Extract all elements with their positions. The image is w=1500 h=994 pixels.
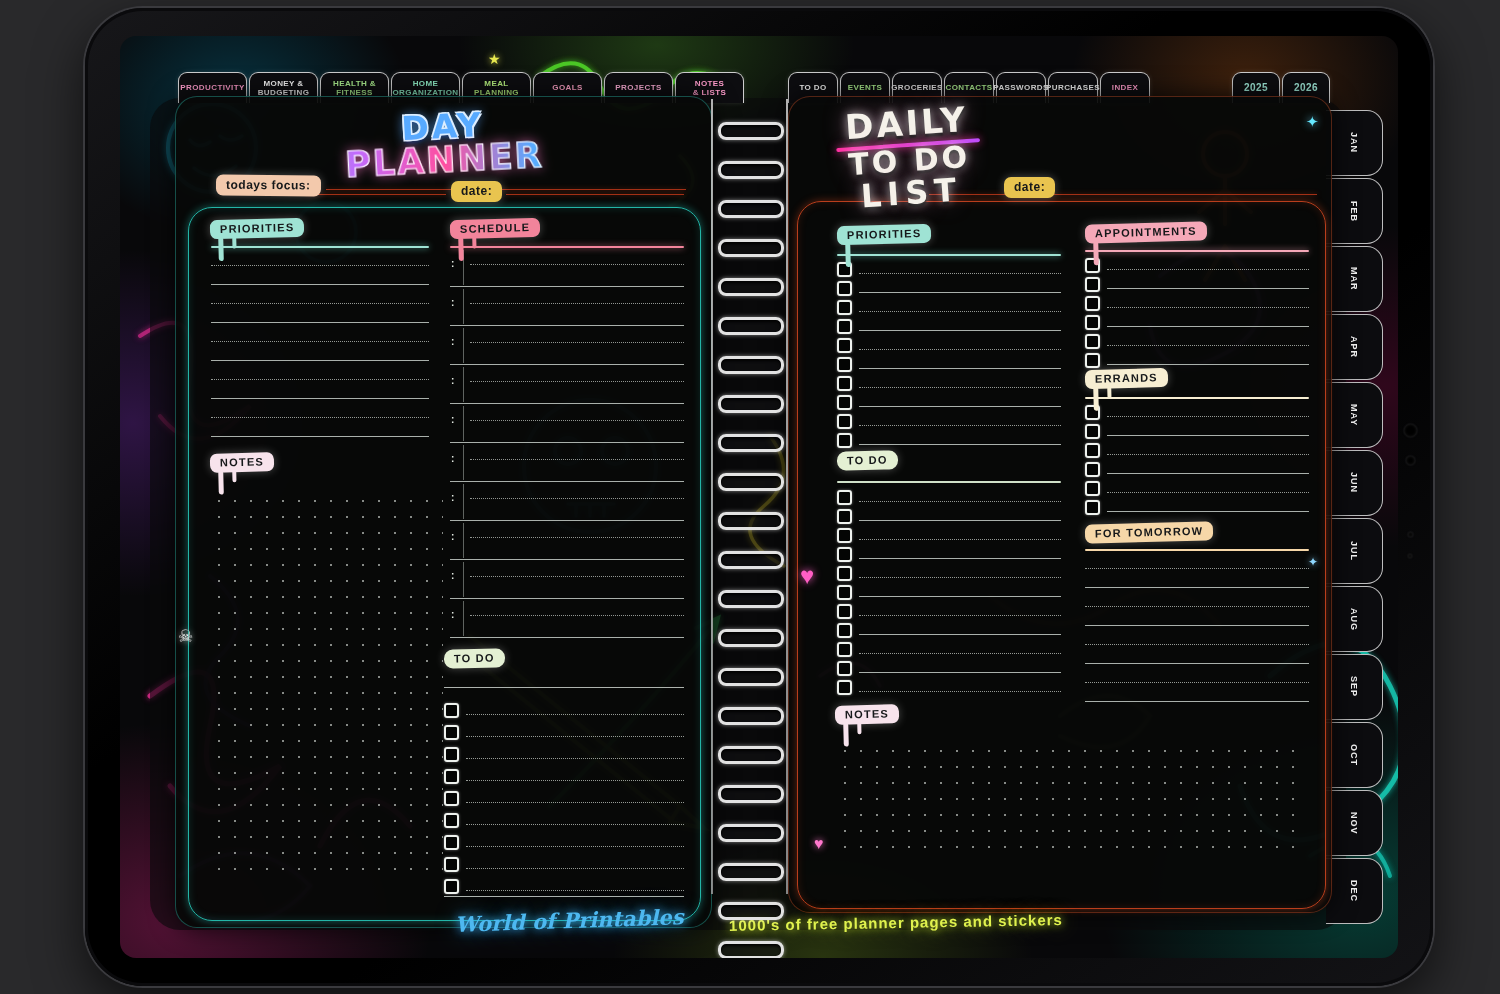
writing-line[interactable] (1085, 644, 1309, 645)
todo-checkbox[interactable] (1085, 481, 1100, 496)
writing-line[interactable] (466, 824, 684, 825)
date-line[interactable] (306, 194, 446, 195)
writing-line[interactable] (211, 303, 429, 304)
checklist-row[interactable] (444, 827, 684, 849)
todo-checkbox[interactable] (837, 338, 852, 353)
todo-checkbox[interactable] (1085, 424, 1100, 439)
writing-line[interactable] (1107, 364, 1309, 365)
notes-dot-grid[interactable] (837, 743, 1295, 855)
checklist-row[interactable] (837, 352, 1061, 371)
todo-topline (837, 481, 1061, 483)
heart-icon: ♥ (800, 564, 814, 588)
checklist-row[interactable] (444, 871, 684, 893)
month-tab-label: APR (1349, 336, 1359, 358)
writing-line[interactable] (211, 284, 429, 285)
column-divider (463, 445, 464, 480)
month-tab-label: FEB (1349, 201, 1359, 222)
month-tab-label: JAN (1349, 132, 1359, 153)
spiral-ring (718, 161, 784, 179)
month-tab-label: DEC (1349, 880, 1359, 902)
checklist-row[interactable] (444, 761, 684, 783)
camera-dot (1408, 554, 1412, 558)
writing-line[interactable] (211, 398, 429, 399)
paint-drip (232, 237, 236, 249)
spiral-ring (718, 785, 784, 803)
spiral-ring (718, 590, 784, 608)
month-tab-label: AUG (1349, 608, 1359, 631)
writing-line[interactable] (859, 634, 1061, 635)
checklist-row[interactable] (837, 599, 1061, 618)
todo-topline (444, 687, 684, 688)
writing-line[interactable] (466, 868, 684, 869)
writing-line[interactable] (1085, 701, 1309, 702)
todo-checkbox[interactable] (1085, 315, 1100, 330)
checklist-row[interactable] (837, 580, 1061, 599)
time-colon: : (451, 297, 454, 308)
paint-drip (1093, 387, 1099, 411)
time-colon: : (451, 414, 454, 425)
planner-screen: PRODUCTIVITYMONEY & BUDGETINGHEALTH & FI… (120, 36, 1398, 958)
priorities-badge: PRIORITIES (210, 218, 305, 239)
writing-line[interactable] (1107, 269, 1309, 270)
writing-row[interactable] (211, 287, 429, 306)
checklist-row[interactable] (837, 485, 1061, 504)
spiral-binding (718, 122, 784, 958)
writing-line[interactable] (859, 691, 1061, 692)
schedule-row[interactable]: : (450, 599, 684, 638)
writing-line[interactable] (1107, 492, 1309, 493)
todo-checkbox[interactable] (837, 547, 852, 562)
notes-badge: NOTES (210, 452, 274, 473)
writing-line[interactable] (859, 672, 1061, 673)
writing-line[interactable] (211, 322, 429, 323)
spiral-ring (718, 551, 784, 569)
todo-checkbox[interactable] (1085, 500, 1100, 515)
checklist-row[interactable] (1085, 400, 1309, 419)
writing-row[interactable] (211, 401, 429, 420)
time-colon: : (451, 492, 454, 503)
column-divider (463, 562, 464, 597)
writing-line[interactable] (1107, 288, 1309, 289)
paint-drip (845, 243, 851, 267)
todo-badge: TO DO (444, 648, 505, 669)
time-colon: : (451, 336, 454, 347)
writing-line[interactable] (859, 501, 1061, 502)
todo-checkbox[interactable] (837, 433, 852, 448)
checklist-row[interactable] (1085, 476, 1309, 495)
column-divider (463, 601, 464, 636)
writing-row[interactable] (211, 420, 429, 439)
writing-line[interactable] (211, 265, 429, 266)
writing-line[interactable] (1107, 307, 1309, 308)
spiral-ring (718, 902, 784, 920)
spiral-ring (718, 395, 784, 413)
spiral-ring (718, 707, 784, 725)
checklist-row[interactable] (1085, 272, 1309, 291)
paint-drip (1093, 241, 1099, 265)
todo-checkbox[interactable] (1085, 443, 1100, 458)
writing-line[interactable] (470, 615, 684, 616)
month-tab-jan[interactable]: JAN (1326, 110, 1383, 176)
column-divider (463, 328, 464, 363)
writing-line[interactable] (859, 539, 1061, 540)
writing-line[interactable] (1085, 625, 1309, 626)
todo-checkbox[interactable] (444, 879, 459, 894)
daily-todo-title: DAILY TO DO LIST (815, 97, 1002, 218)
paint-drip (232, 470, 236, 482)
schedule-row[interactable]: : (450, 560, 684, 599)
writing-line[interactable] (211, 379, 429, 380)
todo-checkbox[interactable] (444, 813, 459, 828)
checklist-row[interactable] (837, 257, 1061, 276)
checklist-row[interactable] (444, 849, 684, 871)
checklist-row[interactable] (837, 523, 1061, 542)
todo-checkbox[interactable] (837, 357, 852, 372)
column-divider (463, 523, 464, 558)
writing-line[interactable] (859, 596, 1061, 597)
paint-drip (843, 722, 849, 746)
front-camera (1404, 424, 1417, 437)
checklist-row[interactable] (1085, 291, 1309, 310)
month-tab-label: JUL (1349, 541, 1359, 561)
spiral-ring (718, 434, 784, 452)
todo-checkbox[interactable] (837, 528, 852, 543)
todo-checkbox[interactable] (837, 414, 852, 429)
tablet-frame: PRODUCTIVITYMONEY & BUDGETINGHEALTH & FI… (85, 8, 1433, 986)
writing-row[interactable] (1085, 685, 1309, 704)
spiral-ring (718, 122, 784, 140)
time-colon: : (451, 531, 454, 542)
writing-line[interactable] (466, 736, 684, 737)
writing-line[interactable] (470, 420, 684, 421)
page-edge (711, 99, 713, 894)
todo-checkbox[interactable] (444, 725, 459, 740)
writing-line[interactable] (470, 498, 684, 499)
page-edge (786, 99, 788, 894)
paint-drip (218, 470, 224, 494)
checklist-row[interactable] (1085, 419, 1309, 438)
checklist-row[interactable] (837, 618, 1061, 637)
spiral-ring (718, 941, 784, 958)
writing-line[interactable] (466, 846, 684, 847)
todo-checkbox[interactable] (444, 769, 459, 784)
writing-line[interactable] (466, 890, 684, 891)
todo-checkbox[interactable] (1085, 277, 1100, 292)
checklist-row[interactable] (1085, 438, 1309, 457)
todo-checkbox[interactable] (1085, 296, 1100, 311)
date-label: date: (1004, 177, 1055, 198)
checklist-row[interactable] (837, 276, 1061, 295)
time-colon: : (451, 258, 454, 269)
month-tab-label: SEP (1349, 676, 1359, 697)
checklist-row[interactable] (444, 695, 684, 717)
sparkle-icon: ✦ (1308, 556, 1318, 568)
todo-checkbox[interactable] (837, 604, 852, 619)
todo-checkbox[interactable] (837, 395, 852, 410)
errands-rows (1085, 400, 1309, 514)
spiral-ring (718, 356, 784, 374)
checklist-row[interactable] (1085, 253, 1309, 272)
todo-checkbox[interactable] (837, 623, 852, 638)
writing-line[interactable] (1085, 568, 1309, 569)
writing-line[interactable] (1107, 416, 1309, 417)
checklist-row[interactable] (837, 542, 1061, 561)
writing-line[interactable] (470, 576, 684, 577)
writing-line[interactable] (859, 615, 1061, 616)
schedule-row[interactable]: : (450, 287, 684, 326)
spiral-ring (718, 863, 784, 881)
time-colon: : (451, 609, 454, 620)
column-divider (463, 289, 464, 324)
spiral-ring (718, 317, 784, 335)
writing-line[interactable] (470, 264, 684, 265)
time-colon: : (451, 375, 454, 386)
paint-drip (458, 237, 464, 261)
todo-checkbox[interactable] (837, 680, 852, 695)
todo-checkbox[interactable] (837, 376, 852, 391)
for-tomorrow-badge: FOR TOMORROW (1085, 521, 1214, 543)
month-tab-label: NOV (1349, 812, 1359, 835)
todays-focus-label: todays focus: (216, 175, 321, 197)
checklist-row[interactable] (837, 333, 1061, 352)
writing-row[interactable] (1085, 666, 1309, 685)
schedule-row[interactable]: : (450, 365, 684, 404)
appointments-rows (1085, 253, 1309, 367)
paint-drip (1107, 386, 1111, 398)
todo-checkbox[interactable] (1085, 462, 1100, 477)
writing-row[interactable] (1085, 628, 1309, 647)
schedule-row[interactable]: : (450, 521, 684, 560)
month-tab-nov[interactable]: NOV (1326, 790, 1383, 856)
star-icon: ★ (488, 52, 501, 66)
writing-line[interactable] (859, 349, 1061, 350)
writing-line[interactable] (1085, 663, 1309, 664)
todo-checkbox[interactable] (1085, 353, 1100, 368)
writing-line[interactable] (859, 387, 1061, 388)
month-tab-mar[interactable]: MAR (1326, 246, 1383, 312)
paint-drip (472, 236, 476, 248)
writing-row[interactable] (1085, 647, 1309, 666)
writing-line[interactable] (859, 653, 1061, 654)
todo-checkbox[interactable] (837, 509, 852, 524)
writing-line[interactable] (1107, 511, 1309, 512)
month-tab-oct[interactable]: OCT (1326, 722, 1383, 788)
writing-row[interactable] (1085, 609, 1309, 628)
month-tab-aug[interactable]: AUG (1326, 586, 1383, 652)
writing-line[interactable] (859, 558, 1061, 559)
checklist-row[interactable] (1085, 348, 1309, 367)
writing-line[interactable] (470, 381, 684, 382)
writing-line[interactable] (1107, 345, 1309, 346)
writing-line[interactable] (1085, 587, 1309, 588)
writing-line[interactable] (466, 802, 684, 803)
todo-checkbox[interactable] (837, 642, 852, 657)
todo-checkbox[interactable] (837, 585, 852, 600)
month-tab-feb[interactable]: FEB (1326, 178, 1383, 244)
todo-checkbox[interactable] (837, 281, 852, 296)
writing-line[interactable] (470, 342, 684, 343)
writing-line[interactable] (211, 341, 429, 342)
checklist-row[interactable] (837, 637, 1061, 656)
checklist-row[interactable] (837, 295, 1061, 314)
errands-badge: ERRANDS (1085, 368, 1168, 389)
writing-line[interactable] (859, 425, 1061, 426)
priorities-rows (837, 257, 1061, 447)
todo-checkbox[interactable] (444, 835, 459, 850)
writing-line[interactable] (859, 368, 1061, 369)
writing-line[interactable] (859, 444, 1061, 445)
schedule-row[interactable]: : (450, 443, 684, 482)
writing-line[interactable] (859, 520, 1061, 521)
month-tab-column: JANFEBMARAPRMAYJUNJULAUGSEPOCTNOVDEC (1326, 110, 1383, 924)
writing-row[interactable] (211, 363, 429, 382)
spiral-ring (718, 668, 784, 686)
month-tab-label: OCT (1349, 744, 1359, 766)
writing-line[interactable] (466, 780, 684, 781)
todo-badge: TO DO (837, 450, 898, 471)
priorities-badge: PRIORITIES (837, 224, 932, 245)
column-divider (463, 406, 464, 441)
writing-line[interactable] (466, 714, 684, 715)
writing-line[interactable] (859, 406, 1061, 407)
writing-row[interactable] (211, 306, 429, 325)
checklist-row[interactable] (837, 371, 1061, 390)
date-line[interactable] (506, 194, 684, 195)
checklist-row[interactable] (1085, 495, 1309, 514)
camera-dot (1408, 532, 1413, 537)
schedule-row[interactable]: : (450, 248, 684, 287)
checklist-row[interactable] (837, 390, 1061, 409)
checklist-row[interactable] (837, 675, 1061, 694)
writing-row[interactable] (211, 325, 429, 344)
todo-checkbox[interactable] (444, 857, 459, 872)
spiral-ring (718, 278, 784, 296)
checklist-row[interactable] (1085, 310, 1309, 329)
writing-line[interactable] (859, 273, 1061, 274)
page-day-planner: DAY PLANNER todays focus: date: PRIORITI… (175, 96, 712, 928)
checklist-row[interactable] (837, 314, 1061, 333)
todo-checkbox[interactable] (837, 319, 852, 334)
notes-dot-grid[interactable] (211, 493, 443, 881)
checklist-row[interactable] (837, 409, 1061, 428)
checklist-row[interactable] (837, 504, 1061, 523)
appointments-topline (1085, 250, 1309, 252)
writing-line[interactable] (211, 360, 429, 361)
schedule-row[interactable]: : (450, 482, 684, 521)
checklist-row[interactable] (837, 656, 1061, 675)
todo-checkbox[interactable] (444, 791, 459, 806)
skull-icon: ☠ (178, 628, 193, 645)
todo-checkbox[interactable] (837, 566, 852, 581)
month-tab-label: MAR (1349, 267, 1359, 291)
todo-checkbox[interactable] (1085, 334, 1100, 349)
month-tab-may[interactable]: MAY (1326, 382, 1383, 448)
writing-row[interactable] (211, 249, 429, 268)
spiral-ring (718, 239, 784, 257)
todo-rows (837, 485, 1061, 694)
todays-focus-line[interactable] (326, 189, 686, 190)
writing-line[interactable] (1107, 326, 1309, 327)
for-tomorrow-rows (1085, 552, 1309, 704)
todo-bottomline (444, 896, 684, 897)
writing-line[interactable] (859, 311, 1061, 312)
todo-checkbox[interactable] (444, 703, 459, 718)
writing-row[interactable] (1085, 590, 1309, 609)
row-divider (450, 637, 684, 638)
writing-line[interactable] (466, 758, 684, 759)
todo-checkbox[interactable] (837, 490, 852, 505)
schedule-badge: SCHEDULE (450, 218, 541, 239)
date-label: date: (451, 181, 502, 202)
writing-line[interactable] (211, 417, 429, 418)
month-tab-jun[interactable]: JUN (1326, 450, 1383, 516)
checklist-row[interactable] (837, 428, 1061, 447)
page-daily-to-do-list: DAILY TO DO LIST date: PRIORITIES TO DO … (788, 96, 1332, 913)
camera-sensor (1406, 456, 1415, 465)
checklist-row[interactable] (444, 783, 684, 805)
for-tomorrow-topline (1085, 549, 1309, 551)
writing-row[interactable] (211, 344, 429, 363)
schedule-row[interactable]: : (450, 326, 684, 365)
brand-wordmark: World of Printables (454, 904, 683, 937)
small-heart-icon: ♥ (814, 836, 824, 852)
writing-line[interactable] (1107, 473, 1309, 474)
month-tab-jul[interactable]: JUL (1326, 518, 1383, 584)
todo-checkbox[interactable] (444, 747, 459, 762)
writing-line[interactable] (1107, 454, 1309, 455)
checklist-row[interactable] (837, 561, 1061, 580)
time-colon: : (451, 453, 454, 464)
writing-line[interactable] (859, 330, 1061, 331)
appointments-badge: APPOINTMENTS (1085, 221, 1207, 243)
schedule-row[interactable]: : (450, 404, 684, 443)
writing-line[interactable] (859, 577, 1061, 578)
todo-checkbox[interactable] (837, 300, 852, 315)
checklist-row[interactable] (444, 805, 684, 827)
writing-line[interactable] (470, 537, 684, 538)
column-divider (463, 367, 464, 402)
writing-line[interactable] (470, 303, 684, 304)
time-colon: : (451, 570, 454, 581)
month-tab-label: MAY (1349, 404, 1359, 426)
notes-badge: NOTES (835, 704, 899, 725)
checklist-row[interactable] (444, 739, 684, 761)
spiral-ring (718, 629, 784, 647)
month-tab-sep[interactable]: SEP (1326, 654, 1383, 720)
month-tab-apr[interactable]: APR (1326, 314, 1383, 380)
checklist-row[interactable] (444, 717, 684, 739)
writing-row[interactable] (211, 382, 429, 401)
todo-checkbox[interactable] (837, 661, 852, 676)
sparkle-icon: ✦ (1306, 114, 1319, 129)
writing-row[interactable] (1085, 571, 1309, 590)
writing-row[interactable] (1085, 552, 1309, 571)
writing-line[interactable] (211, 436, 429, 437)
checklist-row[interactable] (1085, 457, 1309, 476)
spiral-ring (718, 200, 784, 218)
writing-line[interactable] (1107, 435, 1309, 436)
writing-line[interactable] (1085, 606, 1309, 607)
priorities-topline (211, 246, 429, 248)
priorities-rows (211, 249, 429, 439)
checklist-row[interactable] (1085, 329, 1309, 348)
writing-line[interactable] (859, 292, 1061, 293)
schedule-rows: :::::::::: (450, 248, 684, 638)
writing-line[interactable] (1085, 682, 1309, 683)
writing-line[interactable] (470, 459, 684, 460)
writing-row[interactable] (211, 268, 429, 287)
paint-drip (218, 237, 224, 261)
